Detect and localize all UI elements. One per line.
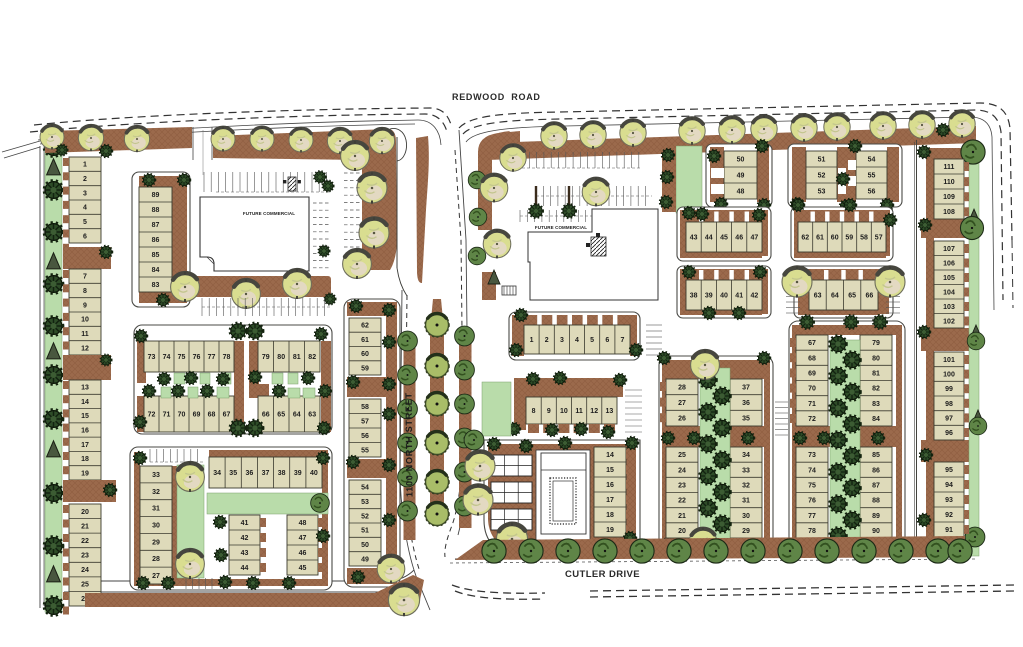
svg-text:51: 51 <box>361 528 369 535</box>
svg-text:59: 59 <box>361 365 369 372</box>
svg-text:67: 67 <box>223 412 231 419</box>
svg-text:110: 110 <box>943 179 954 186</box>
svg-text:84: 84 <box>872 416 880 423</box>
svg-text:85: 85 <box>152 252 160 259</box>
svg-text:3: 3 <box>83 190 87 197</box>
svg-text:14: 14 <box>606 452 614 459</box>
svg-text:5: 5 <box>590 337 594 344</box>
svg-text:90: 90 <box>872 528 880 535</box>
svg-text:4: 4 <box>575 337 579 344</box>
svg-text:1: 1 <box>83 162 87 169</box>
svg-text:75: 75 <box>808 482 816 489</box>
svg-text:55: 55 <box>868 173 876 180</box>
svg-text:33: 33 <box>152 472 160 479</box>
svg-text:24: 24 <box>678 467 686 474</box>
svg-text:82: 82 <box>308 354 316 361</box>
svg-text:36: 36 <box>742 400 750 407</box>
svg-text:13: 13 <box>606 408 614 415</box>
svg-text:1100 NORTH STREET: 1100 NORTH STREET <box>404 392 415 497</box>
svg-text:2: 2 <box>83 176 87 183</box>
svg-text:81: 81 <box>293 354 301 361</box>
svg-text:12: 12 <box>81 345 89 352</box>
svg-text:103: 103 <box>943 304 955 311</box>
svg-text:49: 49 <box>737 173 745 180</box>
svg-text:29: 29 <box>152 539 160 546</box>
svg-text:78: 78 <box>223 354 231 361</box>
svg-text:59: 59 <box>845 235 853 242</box>
svg-text:18: 18 <box>606 512 614 519</box>
svg-text:63: 63 <box>814 293 822 300</box>
svg-text:94: 94 <box>945 482 953 489</box>
svg-text:56: 56 <box>868 189 876 196</box>
svg-text:35: 35 <box>742 416 750 423</box>
svg-text:66: 66 <box>262 412 270 419</box>
svg-text:37: 37 <box>742 384 750 391</box>
svg-text:106: 106 <box>943 260 955 267</box>
svg-text:53: 53 <box>818 189 826 196</box>
svg-text:78: 78 <box>808 528 816 535</box>
svg-text:33: 33 <box>742 467 750 474</box>
svg-text:9: 9 <box>83 302 87 309</box>
svg-text:20: 20 <box>678 528 686 535</box>
svg-text:58: 58 <box>361 404 369 411</box>
svg-text:73: 73 <box>148 354 156 361</box>
svg-text:47: 47 <box>299 535 307 542</box>
svg-text:8: 8 <box>83 288 87 295</box>
svg-text:70: 70 <box>808 386 816 393</box>
svg-text:89: 89 <box>872 513 880 520</box>
svg-text:69: 69 <box>193 412 201 419</box>
svg-text:56: 56 <box>361 433 369 440</box>
svg-text:18: 18 <box>81 456 89 463</box>
svg-text:100: 100 <box>943 372 955 379</box>
svg-text:54: 54 <box>868 157 876 164</box>
svg-text:74: 74 <box>163 354 171 361</box>
svg-text:72: 72 <box>148 412 156 419</box>
svg-text:42: 42 <box>751 293 759 300</box>
svg-text:24: 24 <box>81 567 89 574</box>
svg-text:65: 65 <box>848 293 856 300</box>
svg-text:88: 88 <box>872 498 880 505</box>
svg-text:32: 32 <box>742 482 750 489</box>
svg-text:111: 111 <box>944 164 955 171</box>
svg-text:17: 17 <box>81 442 89 449</box>
svg-text:81: 81 <box>872 370 880 377</box>
svg-text:86: 86 <box>152 237 160 244</box>
svg-text:77: 77 <box>808 513 816 520</box>
svg-text:19: 19 <box>81 470 89 477</box>
svg-text:29: 29 <box>742 528 750 535</box>
svg-text:27: 27 <box>678 400 686 407</box>
svg-text:16: 16 <box>606 482 614 489</box>
svg-text:44: 44 <box>705 235 713 242</box>
svg-text:37: 37 <box>262 470 270 477</box>
svg-text:7: 7 <box>620 337 624 344</box>
svg-text:39: 39 <box>705 293 713 300</box>
svg-text:30: 30 <box>152 523 160 530</box>
svg-text:FUTURE COMMERCIAL: FUTURE COMMERCIAL <box>243 211 295 216</box>
svg-text:41: 41 <box>241 520 249 527</box>
svg-text:61: 61 <box>361 337 369 344</box>
svg-text:4: 4 <box>83 205 87 212</box>
svg-text:2: 2 <box>545 337 549 344</box>
svg-text:27: 27 <box>152 573 160 580</box>
svg-text:52: 52 <box>361 513 369 520</box>
svg-text:80: 80 <box>872 355 880 362</box>
svg-text:1: 1 <box>530 337 534 344</box>
svg-text:40: 40 <box>720 293 728 300</box>
svg-text:57: 57 <box>875 235 883 242</box>
svg-text:83: 83 <box>872 401 880 408</box>
svg-text:91: 91 <box>945 527 953 534</box>
svg-text:87: 87 <box>152 222 160 229</box>
svg-text:73: 73 <box>808 452 816 459</box>
svg-text:38: 38 <box>278 470 286 477</box>
svg-text:3: 3 <box>560 337 564 344</box>
svg-text:26: 26 <box>678 416 686 423</box>
svg-text:88: 88 <box>152 207 160 214</box>
svg-text:92: 92 <box>945 512 953 519</box>
svg-text:12: 12 <box>590 408 598 415</box>
svg-text:32: 32 <box>152 489 160 496</box>
svg-text:76: 76 <box>193 354 201 361</box>
svg-text:72: 72 <box>808 416 816 423</box>
svg-text:34: 34 <box>213 470 221 477</box>
svg-text:74: 74 <box>808 467 816 474</box>
svg-text:30: 30 <box>742 513 750 520</box>
svg-text:31: 31 <box>742 498 750 505</box>
svg-text:10: 10 <box>81 317 89 324</box>
svg-text:25: 25 <box>678 452 686 459</box>
svg-text:98: 98 <box>945 401 953 408</box>
svg-text:17: 17 <box>606 497 614 504</box>
svg-text:79: 79 <box>872 340 880 347</box>
svg-text:102: 102 <box>943 318 955 325</box>
svg-text:83: 83 <box>152 282 160 289</box>
svg-text:99: 99 <box>945 386 953 393</box>
svg-text:8: 8 <box>532 408 536 415</box>
svg-text:20: 20 <box>81 509 89 516</box>
svg-text:REDWOOD ROAD: REDWOOD ROAD <box>452 92 541 102</box>
svg-text:66: 66 <box>866 293 874 300</box>
svg-text:52: 52 <box>818 173 826 180</box>
svg-text:79: 79 <box>262 354 270 361</box>
svg-text:71: 71 <box>808 401 816 408</box>
svg-text:76: 76 <box>808 498 816 505</box>
svg-text:63: 63 <box>308 412 316 419</box>
svg-text:45: 45 <box>299 565 307 572</box>
svg-text:36: 36 <box>246 470 254 477</box>
svg-text:104: 104 <box>943 289 955 296</box>
svg-text:84: 84 <box>152 267 160 274</box>
svg-text:41: 41 <box>735 293 743 300</box>
svg-text:5: 5 <box>83 219 87 226</box>
svg-text:80: 80 <box>277 354 285 361</box>
svg-text:62: 62 <box>801 235 809 242</box>
svg-text:19: 19 <box>606 527 614 534</box>
svg-text:101: 101 <box>943 357 955 364</box>
svg-text:47: 47 <box>751 235 759 242</box>
svg-text:67: 67 <box>808 340 816 347</box>
svg-text:15: 15 <box>606 467 614 474</box>
svg-text:58: 58 <box>860 235 868 242</box>
svg-text:38: 38 <box>690 293 698 300</box>
svg-text:70: 70 <box>178 412 186 419</box>
svg-text:87: 87 <box>872 482 880 489</box>
svg-text:21: 21 <box>81 523 89 530</box>
svg-text:55: 55 <box>361 447 369 454</box>
svg-text:43: 43 <box>241 550 249 557</box>
svg-text:75: 75 <box>178 354 186 361</box>
svg-text:34: 34 <box>742 452 750 459</box>
svg-text:53: 53 <box>361 499 369 506</box>
svg-text:10: 10 <box>560 408 568 415</box>
svg-text:28: 28 <box>152 556 160 563</box>
svg-text:48: 48 <box>299 520 307 527</box>
svg-text:68: 68 <box>808 355 816 362</box>
svg-text:48: 48 <box>737 189 745 196</box>
svg-text:64: 64 <box>293 412 301 419</box>
svg-text:49: 49 <box>361 556 369 563</box>
svg-text:93: 93 <box>945 497 953 504</box>
svg-text:61: 61 <box>816 235 824 242</box>
svg-text:7: 7 <box>83 274 87 281</box>
svg-text:9: 9 <box>547 408 551 415</box>
svg-text:69: 69 <box>808 370 816 377</box>
svg-text:60: 60 <box>831 235 839 242</box>
svg-text:40: 40 <box>310 470 318 477</box>
svg-text:68: 68 <box>208 412 216 419</box>
svg-text:31: 31 <box>152 506 160 513</box>
svg-text:6: 6 <box>605 337 609 344</box>
svg-text:39: 39 <box>294 470 302 477</box>
svg-text:23: 23 <box>678 482 686 489</box>
svg-text:105: 105 <box>943 275 955 282</box>
svg-text:71: 71 <box>163 412 171 419</box>
svg-text:96: 96 <box>945 430 953 437</box>
svg-text:65: 65 <box>277 412 285 419</box>
svg-text:22: 22 <box>678 498 686 505</box>
svg-text:44: 44 <box>241 565 249 572</box>
svg-text:15: 15 <box>81 413 89 420</box>
svg-text:23: 23 <box>81 553 89 560</box>
svg-text:54: 54 <box>361 485 369 492</box>
svg-text:64: 64 <box>831 293 839 300</box>
svg-text:86: 86 <box>872 467 880 474</box>
svg-text:35: 35 <box>229 470 237 477</box>
svg-text:51: 51 <box>818 157 826 164</box>
svg-text:108: 108 <box>943 209 955 216</box>
svg-text:97: 97 <box>945 416 953 423</box>
svg-text:60: 60 <box>361 351 369 358</box>
svg-text:95: 95 <box>945 467 953 474</box>
svg-text:45: 45 <box>720 235 728 242</box>
svg-text:85: 85 <box>872 452 880 459</box>
svg-text:28: 28 <box>678 384 686 391</box>
svg-text:FUTURE COMMERCIAL: FUTURE COMMERCIAL <box>535 225 587 230</box>
svg-text:46: 46 <box>735 235 743 242</box>
svg-text:11: 11 <box>81 331 89 338</box>
svg-text:43: 43 <box>690 235 698 242</box>
svg-text:46: 46 <box>299 550 307 557</box>
svg-text:25: 25 <box>81 582 89 589</box>
svg-text:6: 6 <box>83 233 87 240</box>
svg-text:57: 57 <box>361 418 369 425</box>
svg-text:50: 50 <box>361 542 369 549</box>
svg-text:11: 11 <box>575 408 583 415</box>
svg-text:62: 62 <box>361 323 369 330</box>
svg-text:77: 77 <box>208 354 216 361</box>
svg-text:13: 13 <box>81 385 89 392</box>
svg-text:14: 14 <box>81 399 89 406</box>
svg-text:21: 21 <box>678 513 686 520</box>
svg-text:109: 109 <box>943 194 955 201</box>
svg-text:107: 107 <box>943 246 955 253</box>
svg-text:16: 16 <box>81 428 89 435</box>
svg-text:42: 42 <box>241 535 249 542</box>
svg-text:82: 82 <box>872 386 880 393</box>
svg-text:89: 89 <box>152 192 160 199</box>
svg-text:CUTLER DRIVE: CUTLER DRIVE <box>565 569 640 580</box>
svg-text:50: 50 <box>737 157 745 164</box>
svg-text:22: 22 <box>81 538 89 545</box>
